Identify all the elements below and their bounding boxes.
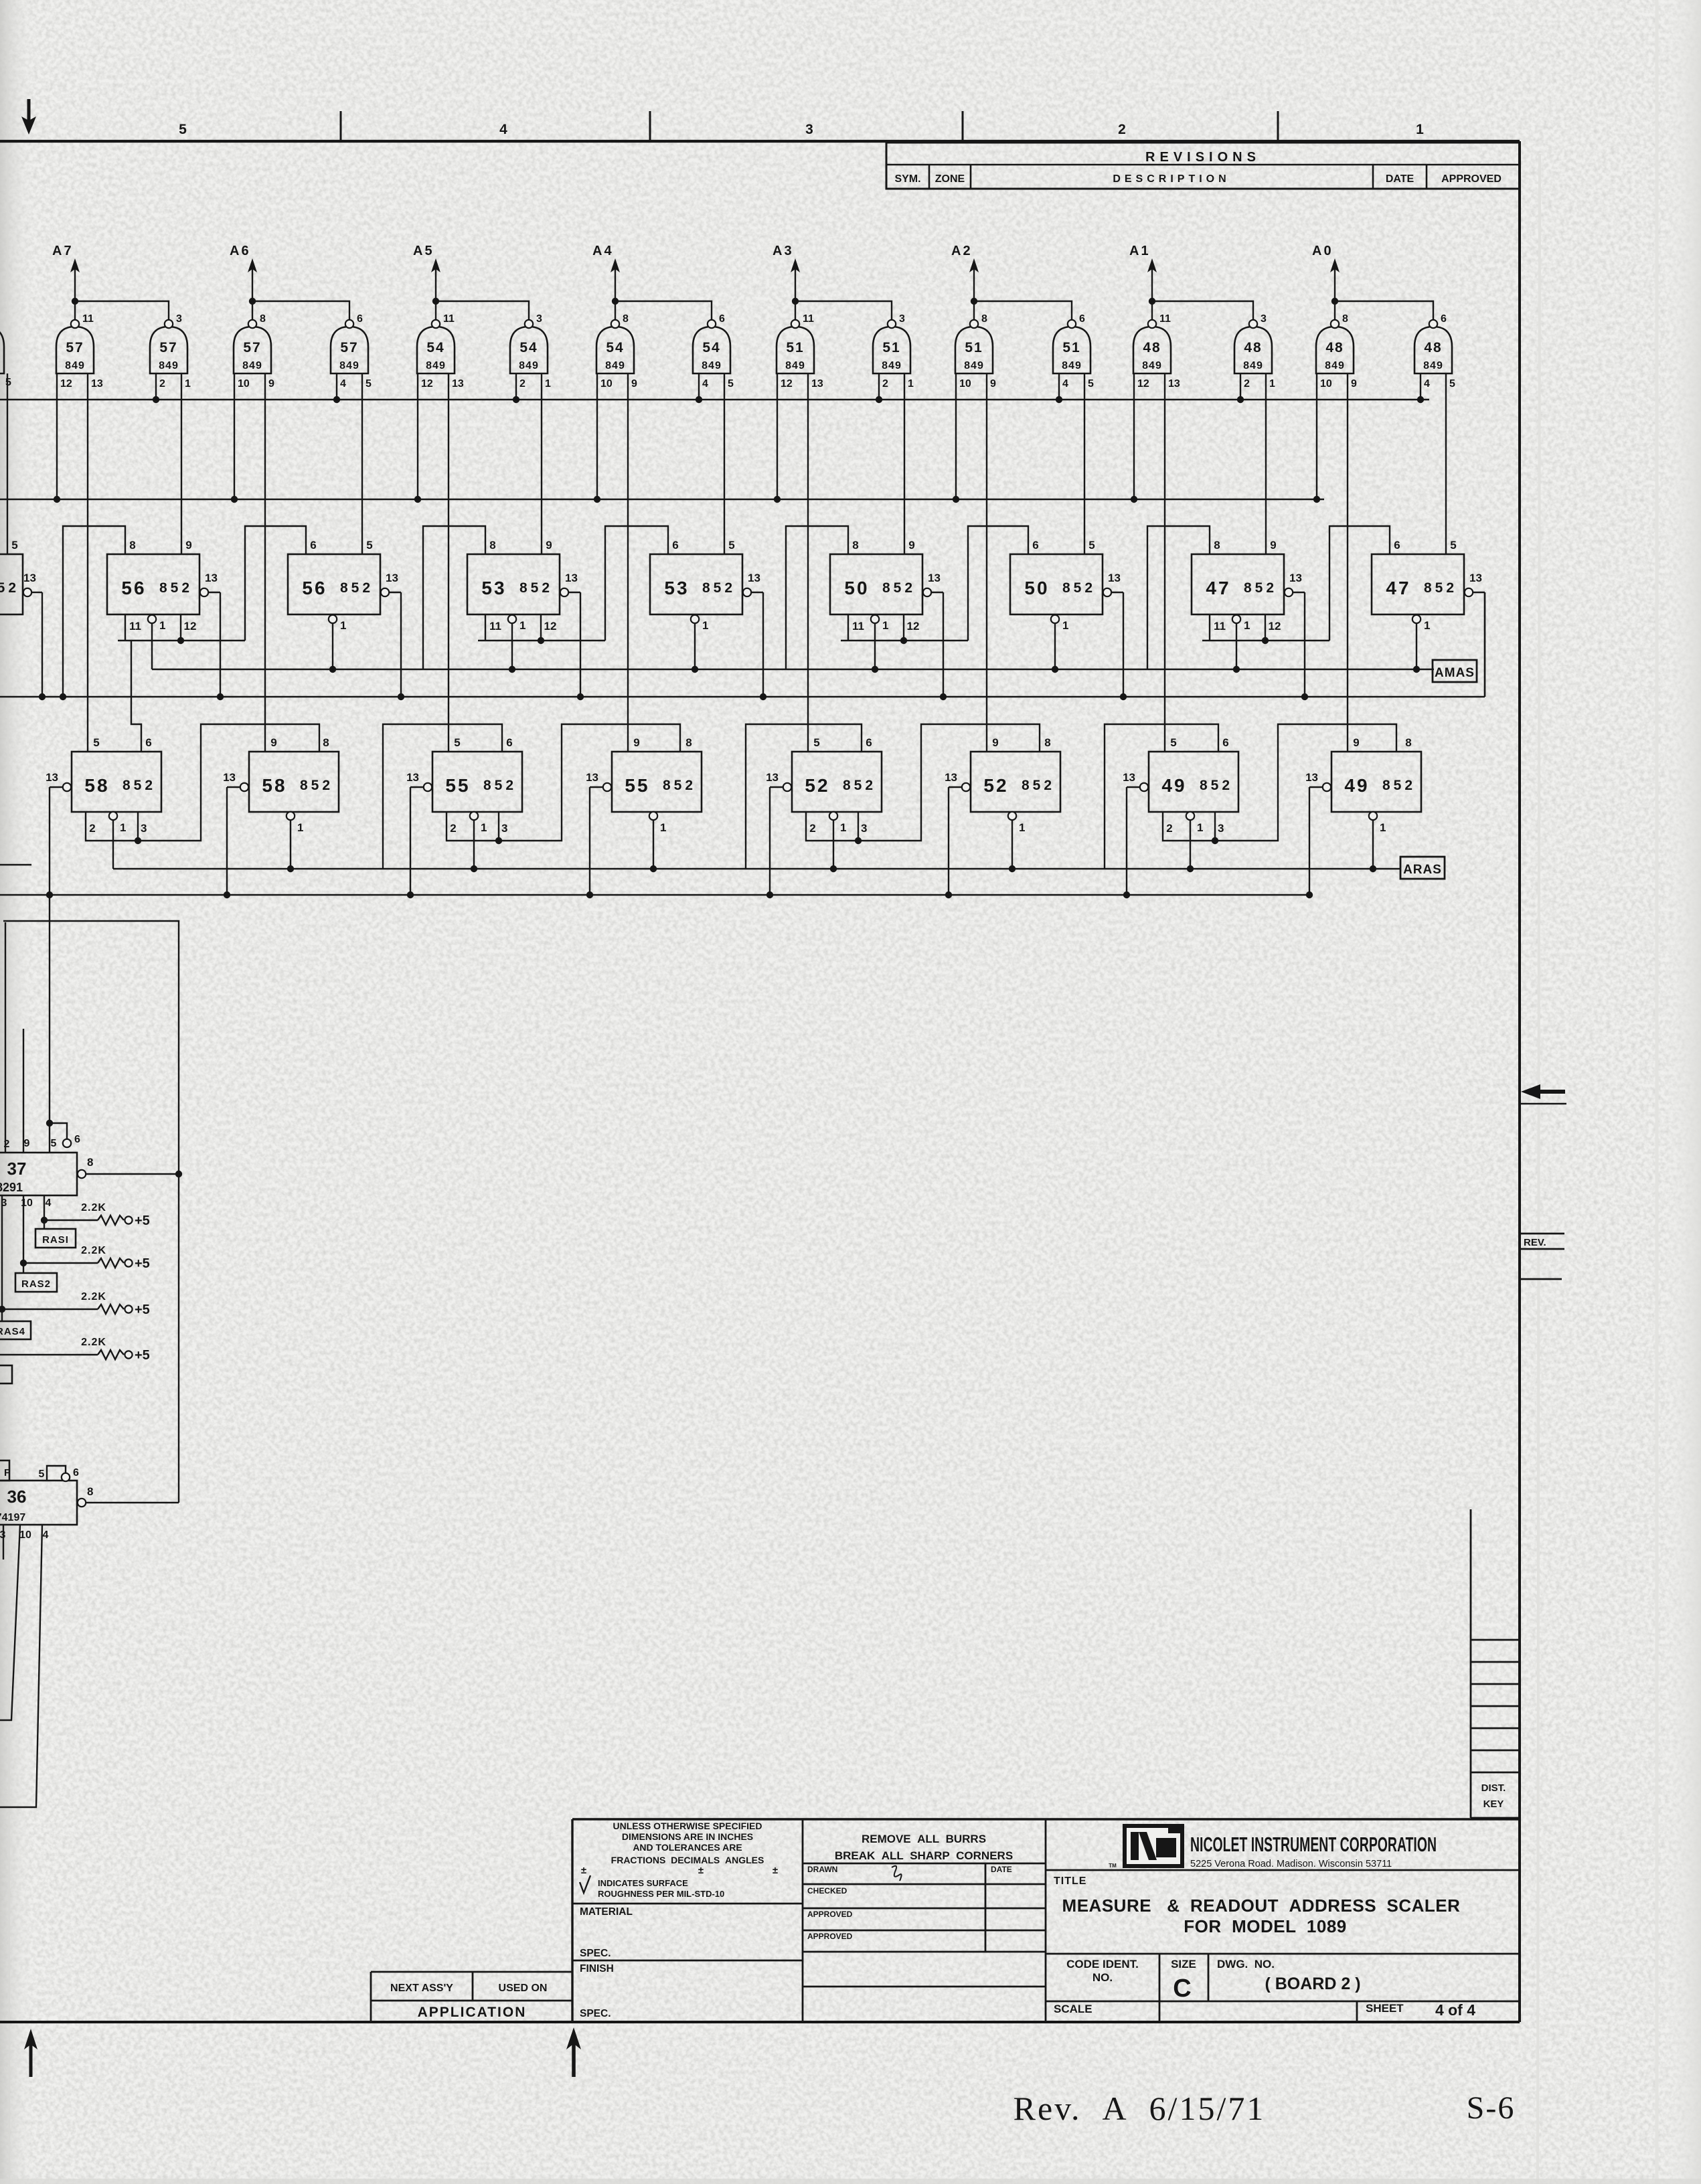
svg-text:2.2K: 2.2K [81, 1291, 106, 1303]
svg-text:51: 51 [786, 340, 804, 355]
svg-text:8291: 8291 [0, 1181, 23, 1194]
svg-text:1: 1 [1244, 619, 1250, 632]
svg-text:5: 5 [5, 377, 11, 388]
svg-text:A2: A2 [951, 244, 973, 258]
svg-text:2: 2 [1244, 378, 1250, 390]
svg-text:849: 849 [339, 360, 359, 371]
svg-text:F: F [4, 1467, 10, 1479]
svg-text:3: 3 [1261, 313, 1267, 325]
svg-text:849: 849 [702, 360, 722, 371]
svg-text:ZONE: ZONE [935, 173, 965, 185]
svg-text:9: 9 [1351, 378, 1357, 390]
svg-text:KEY: KEY [1483, 1798, 1504, 1810]
svg-text:5: 5 [39, 1468, 45, 1480]
svg-text:1: 1 [1019, 821, 1025, 834]
svg-text:CHECKED: CHECKED [807, 1886, 847, 1896]
svg-text:13: 13 [928, 572, 941, 584]
svg-text:2: 2 [519, 378, 525, 390]
svg-text:11: 11 [852, 620, 864, 633]
svg-text:852: 852 [843, 778, 876, 793]
svg-text:849: 849 [785, 360, 805, 371]
svg-text:6: 6 [310, 539, 316, 552]
svg-text:11: 11 [1214, 620, 1226, 633]
svg-text:5: 5 [366, 539, 372, 552]
svg-text:1: 1 [1269, 378, 1275, 390]
svg-text:ARAS: ARAS [1403, 863, 1442, 877]
svg-text:852: 852 [1424, 580, 1457, 596]
svg-text:52: 52 [805, 775, 829, 796]
svg-text:13: 13 [748, 572, 760, 584]
svg-text:74197: 74197 [0, 1512, 25, 1523]
svg-text:5: 5 [1449, 378, 1455, 390]
svg-text:DRAWN: DRAWN [807, 1865, 837, 1874]
svg-text:A1: A1 [1129, 244, 1151, 258]
svg-text:8: 8 [852, 539, 858, 552]
svg-text:A6: A6 [230, 244, 251, 258]
svg-text:849: 849 [964, 360, 984, 371]
svg-text:TM: TM [1109, 1863, 1117, 1869]
svg-text:8: 8 [1342, 313, 1348, 325]
svg-text:1: 1 [185, 378, 191, 390]
svg-text:1: 1 [702, 619, 708, 632]
svg-text:3: 3 [1218, 822, 1224, 835]
svg-text:5225 Verona Road. Madison. Wis: 5225 Verona Road. Madison. Wisconsin 537… [1190, 1859, 1392, 1869]
svg-text:A3: A3 [773, 244, 794, 258]
svg-text:852: 852 [519, 580, 553, 596]
svg-text:MEASURE & READOUT ADDRESS: MEASURE & READOUT ADDRESS SCALER [1062, 1896, 1461, 1916]
svg-text:3: 3 [805, 122, 813, 137]
svg-text:2: 2 [4, 1139, 10, 1150]
svg-text:8: 8 [323, 736, 329, 749]
svg-text:13: 13 [23, 572, 36, 584]
svg-text:DATE: DATE [991, 1865, 1012, 1874]
svg-text:A5: A5 [413, 244, 434, 258]
svg-text:TITLE: TITLE [1054, 1875, 1086, 1887]
svg-text:10: 10 [238, 378, 250, 390]
svg-text:5: 5 [93, 736, 99, 749]
svg-text:4: 4 [43, 1529, 49, 1541]
svg-text:8: 8 [1405, 736, 1411, 749]
svg-text:1: 1 [1424, 619, 1430, 632]
svg-text:54: 54 [426, 340, 444, 355]
svg-text:2: 2 [1166, 822, 1172, 835]
svg-text:AND TOLERANCES ARE: AND TOLERANCES ARE [633, 1842, 742, 1853]
svg-text:2: 2 [1118, 122, 1126, 137]
svg-text:NEXT ASS'Y: NEXT ASS'Y [390, 1983, 453, 1994]
svg-text:9: 9 [546, 539, 552, 552]
svg-text:8: 8 [87, 1156, 93, 1169]
svg-text:11: 11 [443, 313, 455, 325]
svg-text:9: 9 [631, 378, 637, 390]
svg-text:12: 12 [60, 378, 72, 390]
svg-text:849: 849 [65, 360, 85, 371]
svg-text:5: 5 [454, 736, 460, 749]
svg-text:13: 13 [1123, 771, 1135, 784]
svg-text:FRACTIONS DECIMALS ANGLES: FRACTIONS DECIMALS ANGLES [611, 1855, 764, 1865]
svg-text:852: 852 [340, 580, 374, 596]
svg-text:849: 849 [1423, 360, 1443, 371]
svg-text:11: 11 [1159, 313, 1171, 325]
svg-text:1: 1 [840, 821, 846, 834]
svg-text:10: 10 [19, 1529, 31, 1541]
svg-text:1: 1 [545, 378, 551, 390]
svg-text:6: 6 [357, 313, 363, 325]
svg-text:RASI: RASI [42, 1234, 69, 1246]
svg-text:1: 1 [340, 619, 346, 632]
svg-text:13: 13 [452, 378, 464, 390]
svg-text:55: 55 [625, 775, 649, 796]
svg-text:APPROVED: APPROVED [807, 1910, 853, 1919]
svg-text:6: 6 [672, 539, 678, 552]
svg-text:9: 9 [633, 736, 639, 749]
svg-text:2.2K: 2.2K [81, 1337, 106, 1348]
svg-text:57: 57 [66, 340, 84, 355]
svg-text:8: 8 [1214, 539, 1220, 552]
svg-text:3: 3 [536, 313, 542, 325]
svg-text:USED ON: USED ON [499, 1983, 548, 1994]
svg-text:852: 852 [1022, 778, 1055, 793]
svg-text:12: 12 [781, 378, 793, 390]
svg-text:852: 852 [123, 778, 156, 793]
svg-text:UNLESS OTHERWISE SPECIFIED: UNLESS OTHERWISE SPECIFIED [613, 1821, 762, 1831]
svg-text:11: 11 [82, 313, 94, 325]
svg-text:849: 849 [1142, 360, 1162, 371]
svg-text:852: 852 [0, 580, 19, 596]
svg-text:1: 1 [660, 821, 666, 834]
svg-text:37: 37 [7, 1159, 27, 1179]
svg-text:1: 1 [120, 821, 126, 834]
svg-text:849: 849 [159, 360, 179, 371]
svg-text:4: 4 [46, 1197, 52, 1209]
svg-text:SPEC.: SPEC. [580, 2008, 611, 2019]
svg-text:56: 56 [121, 578, 146, 598]
svg-text:+5: +5 [135, 1348, 150, 1363]
svg-text:10: 10 [21, 1197, 33, 1209]
svg-text:849: 849 [519, 360, 539, 371]
svg-text:48: 48 [1244, 340, 1262, 355]
svg-text:12: 12 [544, 620, 557, 633]
svg-text:50: 50 [1024, 578, 1049, 598]
svg-text:SHEET: SHEET [1366, 2002, 1404, 2015]
svg-text:5: 5 [179, 122, 187, 137]
svg-text:1: 1 [159, 619, 165, 632]
svg-text:6: 6 [1079, 313, 1085, 325]
svg-text:58: 58 [84, 775, 109, 796]
svg-text:+5: +5 [135, 1213, 150, 1228]
svg-text:4: 4 [340, 378, 346, 390]
svg-text:REV.: REV. [1524, 1237, 1546, 1248]
svg-text:12: 12 [1137, 378, 1149, 390]
svg-text:8: 8 [129, 539, 135, 552]
svg-text:+5: +5 [135, 1303, 150, 1317]
svg-text:849: 849 [1325, 360, 1345, 371]
svg-text:54: 54 [702, 340, 720, 355]
svg-text:5: 5 [728, 378, 734, 390]
svg-text:±: ± [581, 1865, 586, 1876]
svg-text:849: 849 [605, 360, 625, 371]
svg-text:5: 5 [1088, 539, 1095, 552]
svg-text:4: 4 [499, 122, 507, 137]
svg-text:852: 852 [1244, 580, 1277, 596]
svg-text:4: 4 [1062, 378, 1068, 390]
svg-text:1: 1 [519, 619, 525, 632]
svg-text:DESCRIPTION: DESCRIPTION [1113, 173, 1230, 185]
svg-text:849: 849 [242, 360, 262, 371]
svg-text:13: 13 [945, 771, 957, 784]
svg-text:13: 13 [1469, 572, 1482, 584]
svg-text:6: 6 [506, 736, 512, 749]
svg-text:13: 13 [811, 378, 823, 390]
svg-text:4: 4 [1424, 378, 1430, 390]
svg-text:AMAS: AMAS [1435, 666, 1475, 680]
svg-text:13: 13 [406, 771, 419, 784]
svg-text:8: 8 [260, 313, 266, 325]
svg-text:2: 2 [89, 822, 95, 835]
svg-text:49: 49 [1344, 775, 1369, 796]
svg-text:SIZE: SIZE [1171, 1958, 1196, 1970]
svg-text:9: 9 [185, 539, 191, 552]
svg-text:FOR MODEL 1089: FOR MODEL 1089 [1184, 1916, 1347, 1936]
svg-text:NICOLET INSTRUMENT CORPORATION: NICOLET INSTRUMENT CORPORATION [1190, 1833, 1437, 1856]
svg-text:±: ± [698, 1865, 704, 1876]
svg-text:3: 3 [899, 313, 905, 325]
svg-text:56: 56 [302, 578, 327, 598]
svg-text:2: 2 [159, 378, 165, 390]
svg-text:NO.: NO. [1092, 1971, 1113, 1984]
svg-text:13: 13 [1168, 378, 1180, 390]
svg-text:10: 10 [600, 378, 613, 390]
svg-text:2: 2 [809, 822, 815, 835]
svg-text:8: 8 [87, 1485, 93, 1498]
svg-text:852: 852 [1062, 580, 1096, 596]
svg-text:55: 55 [445, 775, 470, 796]
svg-text:1: 1 [481, 821, 487, 834]
svg-text:C: C [1173, 1975, 1191, 2003]
svg-text:5: 5 [366, 378, 372, 390]
svg-text:DIST.: DIST. [1481, 1782, 1506, 1794]
svg-text:3: 3 [501, 822, 507, 835]
svg-text:REMOVE ALL BURRS: REMOVE ALL BURRS [862, 1833, 986, 1845]
svg-text:2.2K: 2.2K [81, 1245, 106, 1256]
svg-text:8: 8 [489, 539, 495, 552]
svg-text:13: 13 [223, 771, 236, 784]
svg-text:6: 6 [1394, 539, 1400, 552]
svg-text:A4: A4 [592, 244, 614, 258]
svg-text:Rev. A 6/15/71: Rev. A 6/15/71 [1014, 2090, 1266, 2127]
svg-text:11: 11 [129, 620, 141, 633]
svg-text:3: 3 [141, 822, 147, 835]
svg-text:1: 1 [297, 821, 303, 834]
svg-text:REVISIONS: REVISIONS [1145, 150, 1261, 165]
svg-text:+5: +5 [135, 1256, 150, 1271]
svg-text:849: 849 [426, 360, 446, 371]
svg-text:5: 5 [11, 539, 17, 552]
svg-text:A0: A0 [1312, 244, 1333, 258]
svg-text:1: 1 [1197, 821, 1203, 834]
svg-text:MATERIAL: MATERIAL [580, 1906, 633, 1918]
svg-text:( BOARD 2 ): ( BOARD 2 ) [1265, 1975, 1360, 1993]
svg-text:852: 852 [882, 580, 916, 596]
svg-text:9: 9 [1353, 736, 1359, 749]
svg-text:13: 13 [565, 572, 578, 584]
svg-text:5: 5 [1450, 539, 1456, 552]
svg-text:852: 852 [483, 778, 517, 793]
svg-text:13: 13 [766, 771, 779, 784]
svg-text:INDICATES SURFACE: INDICATES SURFACE [598, 1878, 688, 1888]
svg-text:9: 9 [992, 736, 998, 749]
svg-text:54: 54 [606, 340, 624, 355]
svg-text:12: 12 [1269, 620, 1281, 633]
svg-text:S-6: S-6 [1467, 2090, 1516, 2126]
svg-text:10: 10 [1320, 378, 1332, 390]
svg-text:9: 9 [270, 736, 276, 749]
svg-text:APPLICATION: APPLICATION [418, 2005, 527, 2020]
svg-text:51: 51 [882, 340, 900, 355]
svg-text:5: 5 [1170, 736, 1176, 749]
svg-text:57: 57 [243, 340, 261, 355]
svg-text:±: ± [773, 1865, 778, 1876]
svg-text:13: 13 [46, 771, 58, 784]
svg-text:5: 5 [51, 1138, 57, 1149]
svg-text:6: 6 [1032, 539, 1038, 552]
svg-text:849: 849 [1062, 360, 1082, 371]
svg-text:13: 13 [1108, 572, 1121, 584]
svg-text:FINISH: FINISH [580, 1963, 614, 1975]
svg-text:RAS2: RAS2 [21, 1278, 51, 1290]
svg-text:51: 51 [1062, 340, 1080, 355]
svg-text:DATE: DATE [1386, 173, 1414, 185]
svg-text:8: 8 [981, 313, 987, 325]
svg-text:1: 1 [1380, 821, 1386, 834]
svg-text:CODE IDENT.: CODE IDENT. [1066, 1958, 1139, 1970]
svg-text:57: 57 [159, 340, 177, 355]
svg-text:ROUGHNESS PER MIL-STD-10: ROUGHNESS PER MIL-STD-10 [598, 1889, 724, 1899]
svg-text:51: 51 [965, 340, 983, 355]
svg-text:49: 49 [1161, 775, 1186, 796]
svg-text:36: 36 [7, 1487, 27, 1507]
svg-text:53: 53 [481, 578, 506, 598]
svg-text:A7: A7 [52, 244, 74, 258]
svg-text:9: 9 [908, 539, 914, 552]
svg-text:1: 1 [908, 378, 914, 390]
svg-text:8: 8 [1044, 736, 1050, 749]
svg-text:54: 54 [519, 340, 538, 355]
svg-text:13: 13 [1289, 572, 1302, 584]
svg-text:53: 53 [664, 578, 689, 598]
svg-text:12: 12 [907, 620, 920, 633]
svg-text:852: 852 [159, 580, 193, 596]
svg-text:SPEC.: SPEC. [580, 1948, 611, 1959]
svg-text:4: 4 [702, 378, 708, 390]
svg-text:48: 48 [1325, 340, 1344, 355]
svg-text:APPROVED: APPROVED [807, 1932, 853, 1941]
svg-text:11: 11 [803, 313, 814, 325]
svg-text:11: 11 [489, 620, 501, 633]
svg-text:9: 9 [990, 378, 996, 390]
svg-text:4 of 4: 4 of 4 [1435, 2001, 1475, 2019]
svg-text:9: 9 [268, 378, 274, 390]
svg-text:8: 8 [685, 736, 692, 749]
svg-text:2: 2 [450, 822, 456, 835]
svg-text:3: 3 [176, 313, 182, 325]
svg-text:2: 2 [882, 378, 888, 390]
svg-text:852: 852 [1382, 778, 1416, 793]
svg-text:APPROVED: APPROVED [1441, 173, 1502, 185]
svg-text:48: 48 [1424, 340, 1442, 355]
svg-text:6: 6 [145, 736, 151, 749]
svg-text:5: 5 [813, 736, 819, 749]
svg-text:2.2K: 2.2K [81, 1202, 106, 1213]
svg-text:852: 852 [300, 778, 333, 793]
svg-text:6: 6 [74, 1134, 80, 1145]
svg-text:852: 852 [702, 580, 736, 596]
svg-text:6: 6 [1441, 313, 1447, 325]
svg-text:6: 6 [73, 1467, 79, 1479]
svg-text:13: 13 [1305, 771, 1318, 784]
svg-text:1: 1 [882, 619, 888, 632]
svg-text:12: 12 [421, 378, 433, 390]
svg-text:6: 6 [866, 736, 872, 749]
svg-text:8: 8 [623, 313, 629, 325]
svg-text:9: 9 [24, 1138, 30, 1149]
svg-text:6: 6 [719, 313, 725, 325]
svg-text:13: 13 [205, 572, 218, 584]
svg-text:849: 849 [1243, 360, 1263, 371]
svg-text:SYM.: SYM. [894, 173, 920, 185]
svg-text:48: 48 [1143, 340, 1161, 355]
svg-text:57: 57 [340, 340, 358, 355]
svg-text:1: 1 [1416, 122, 1424, 137]
svg-text:852: 852 [1200, 778, 1233, 793]
svg-text:3: 3 [861, 822, 867, 835]
svg-text:10: 10 [959, 378, 971, 390]
svg-text:47: 47 [1386, 578, 1410, 598]
svg-text:5: 5 [1088, 378, 1094, 390]
svg-text:12: 12 [184, 620, 197, 633]
svg-text:47: 47 [1206, 578, 1230, 598]
svg-text:RAS4: RAS4 [0, 1326, 25, 1337]
svg-text:52: 52 [983, 775, 1008, 796]
svg-text:9: 9 [1270, 539, 1276, 552]
svg-text:DWG. NO.: DWG. NO. [1217, 1958, 1275, 1970]
svg-text:13: 13 [586, 771, 598, 784]
svg-text:58: 58 [262, 775, 287, 796]
svg-text:13: 13 [91, 378, 103, 390]
svg-text:5: 5 [728, 539, 734, 552]
svg-text:6: 6 [1222, 736, 1228, 749]
svg-text:BREAK ALL SHARP CORNERS: BREAK ALL SHARP CORNERS [835, 1849, 1013, 1862]
svg-text:1: 1 [1062, 619, 1068, 632]
svg-text:849: 849 [882, 360, 902, 371]
svg-text:852: 852 [663, 778, 696, 793]
svg-text:SCALE: SCALE [1054, 2003, 1092, 2015]
svg-text:13: 13 [386, 572, 398, 584]
svg-text:DIMENSIONS ARE IN INCHES: DIMENSIONS ARE IN INCHES [622, 1831, 753, 1842]
svg-text:50: 50 [844, 578, 869, 598]
